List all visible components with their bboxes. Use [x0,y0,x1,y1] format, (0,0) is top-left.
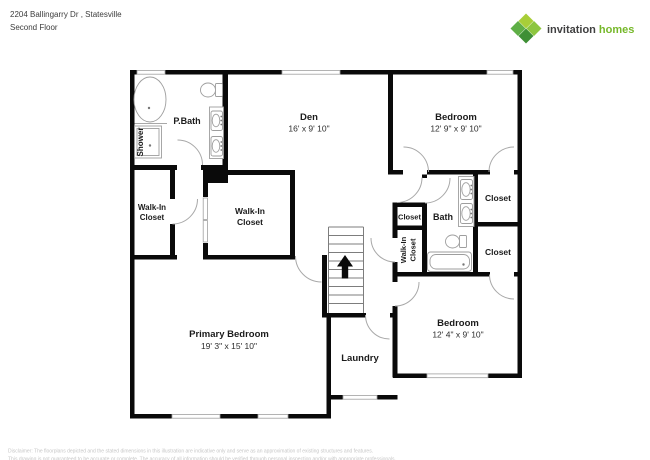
tub-drain-dot [148,107,150,109]
sink-basin [462,207,470,221]
window [137,70,165,74]
closet-door-slabs [203,198,207,242]
room-label-walkin-left-2: Closet [140,213,165,222]
floorplan-page: 2204 Ballingarry Dr , Statesville Second… [0,0,650,460]
logo-wordmark: invitationhomes [547,24,634,36]
stairs-up-arrow-icon [337,255,353,279]
faucet-dot [220,120,222,122]
room-label-walkin-left-1: Walk-In [138,203,166,212]
toilet-tank-icon [216,84,223,97]
svg-text:Shower: Shower [136,128,145,157]
room-label-walkin-mid-2: Closet [237,217,263,227]
room-label-shower: Shower [136,128,145,157]
faucet-dot [470,209,472,211]
tub-drain-dot [462,263,464,265]
room-label-closet-top-right: Closet [485,193,511,203]
room-label-den: Den [300,112,318,123]
room-label-bedroom-bottom: Bedroom [437,318,479,329]
staircase [329,227,364,313]
room-dims-bedroom-bottom: 12' 4" x 9' 10" [432,330,483,340]
window [343,395,377,399]
room-dims-den: 16' x 9' 10" [288,124,329,134]
room-label-walkin-vertical: Walk-In Closet [399,236,418,263]
room-label-closet-bottom-right: Closet [485,247,511,257]
room-dims-primary-bedroom: 19' 3" x 15' 10" [201,341,257,351]
logo-diamonds-icon [511,14,542,44]
faucet-dot [470,217,472,219]
faucet-dot [470,193,472,195]
window [487,70,513,74]
bathtub-inner [430,255,470,270]
window [427,374,488,378]
shower-drain-dot [149,144,151,146]
header: 2204 Ballingarry Dr , Statesville Second… [10,10,122,32]
faucet-dot [220,124,222,126]
room-label-walkin-mid-1: Walk-In [235,206,265,216]
brand-logo: invitationhomes [511,14,635,44]
svg-text:Closet: Closet [409,238,418,261]
toilet-tank-icon [460,236,467,248]
room-label-pbath: P.Bath [173,116,200,126]
window [282,70,340,74]
floor-label: Second Floor [10,23,58,32]
logo-word-invitation: invitation [547,24,596,36]
footer: Disclaimer: The floorplans depicted and … [8,449,396,460]
toilet-bowl-icon [446,235,460,248]
disclaimer-line-2: This drawing is not guaranteed to be acc… [8,457,396,460]
logo-word-homes: homes [599,24,634,36]
sink-basin [212,140,220,153]
door-slab [203,198,207,220]
faucet-dot [220,141,222,143]
faucet-dot [470,213,472,215]
room-dims-bedroom-top: 12' 9" x 9' 10" [430,124,481,134]
room-label-primary-bedroom: Primary Bedroom [189,329,269,340]
bathtub-oval-icon [134,77,166,122]
faucet-dot [470,189,472,191]
sink-basin [462,183,470,197]
address-line: 2204 Ballingarry Dr , Statesville [10,10,122,19]
room-label-closet-hall: Closet [398,213,421,222]
room-label-laundry: Laundry [341,353,379,364]
faucet-dot [220,149,222,151]
room-label-bath: Bath [433,212,453,222]
faucet-dot [220,145,222,147]
faucet-dot [220,116,222,118]
faucet-dot [470,185,472,187]
toilet-bowl-icon [201,83,216,97]
disclaimer-line-1: Disclaimer: The floorplans depicted and … [8,449,373,455]
room-label-bedroom-top: Bedroom [435,112,477,123]
window [172,414,220,418]
window [258,414,288,418]
door-slab [203,221,207,243]
hall-bath-fixtures [428,177,475,272]
sink-basin [212,114,220,127]
svg-text:Walk-In: Walk-In [399,236,408,263]
